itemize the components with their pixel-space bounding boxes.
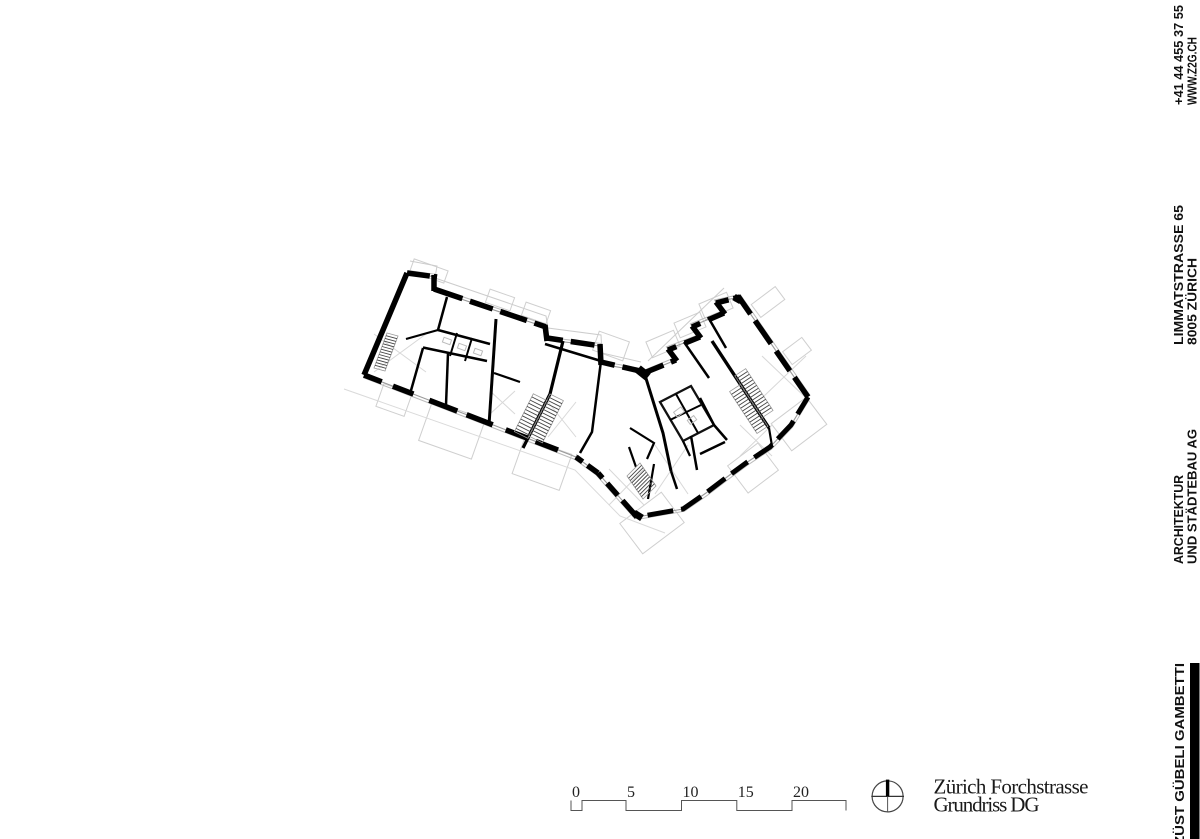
svg-text:UND STÄDTEBAU AG: UND STÄDTEBAU AG: [1185, 429, 1200, 564]
svg-text:5: 5: [627, 784, 635, 801]
svg-text:15: 15: [738, 784, 754, 801]
svg-text:WWW.Z2G.CH: WWW.Z2G.CH: [1185, 37, 1200, 105]
svg-text:10: 10: [683, 784, 699, 801]
svg-text:Grundriss DG: Grundriss DG: [934, 792, 1040, 816]
svg-text:8005 ZÜRICH: 8005 ZÜRICH: [1185, 258, 1200, 345]
svg-text:20: 20: [793, 784, 809, 801]
svg-text:ZÜST GÜBELI GAMBETTI: ZÜST GÜBELI GAMBETTI: [1172, 663, 1187, 839]
svg-text:0: 0: [572, 784, 580, 801]
